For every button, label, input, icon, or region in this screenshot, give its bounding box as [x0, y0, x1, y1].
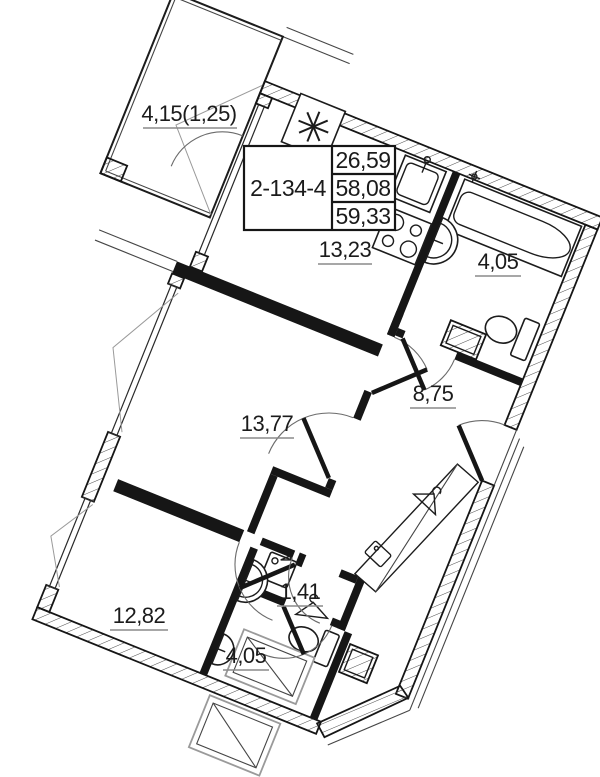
area-value-bottom: 59,33: [335, 203, 390, 229]
title-block: 2-134-4 26,59 58,08 59,33: [244, 146, 395, 230]
floor-plan: 4,15(1,25) 13,23 4,05 8,75 13,77 12,82 1…: [0, 0, 600, 777]
room-area-label-bathroom-bottom: 4,05: [226, 643, 267, 668]
room-area-label-hallway: 8,75: [413, 381, 454, 406]
room-area-label-bedroom: 12,82: [113, 603, 166, 628]
area-value-top: 26,59: [335, 147, 390, 173]
room-area-label-bathroom-top: 4,05: [478, 249, 519, 274]
room-area-label-kitchen: 13,23: [319, 237, 372, 262]
area-value-middle: 58,08: [335, 175, 390, 201]
room-area-label-balcony: 4,15(1,25): [141, 101, 236, 126]
bedroom-window: [49, 498, 90, 588]
unit-number: 2-134-4: [250, 175, 326, 201]
room-area-label-laundry: 1,41: [280, 579, 321, 604]
plan-drawing: [0, 0, 600, 777]
windows: [21, 88, 264, 594]
room-area-label-living: 13,77: [241, 411, 294, 436]
toilet-icon: [479, 305, 540, 361]
living-window: [111, 285, 177, 436]
